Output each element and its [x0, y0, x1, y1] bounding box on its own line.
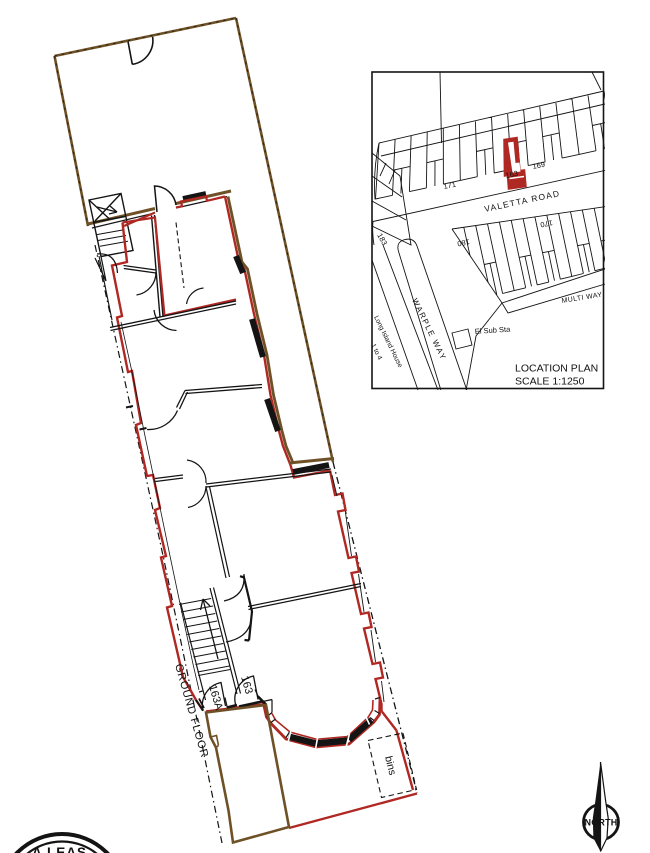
svg-text:LOCATION PLAN: LOCATION PLAN [515, 363, 598, 375]
svg-text:SCALE 1:1250: SCALE 1:1250 [515, 376, 585, 388]
svg-text:A LEAS: A LEAS [32, 845, 87, 853]
svg-text:NORTH: NORTH [585, 818, 618, 828]
